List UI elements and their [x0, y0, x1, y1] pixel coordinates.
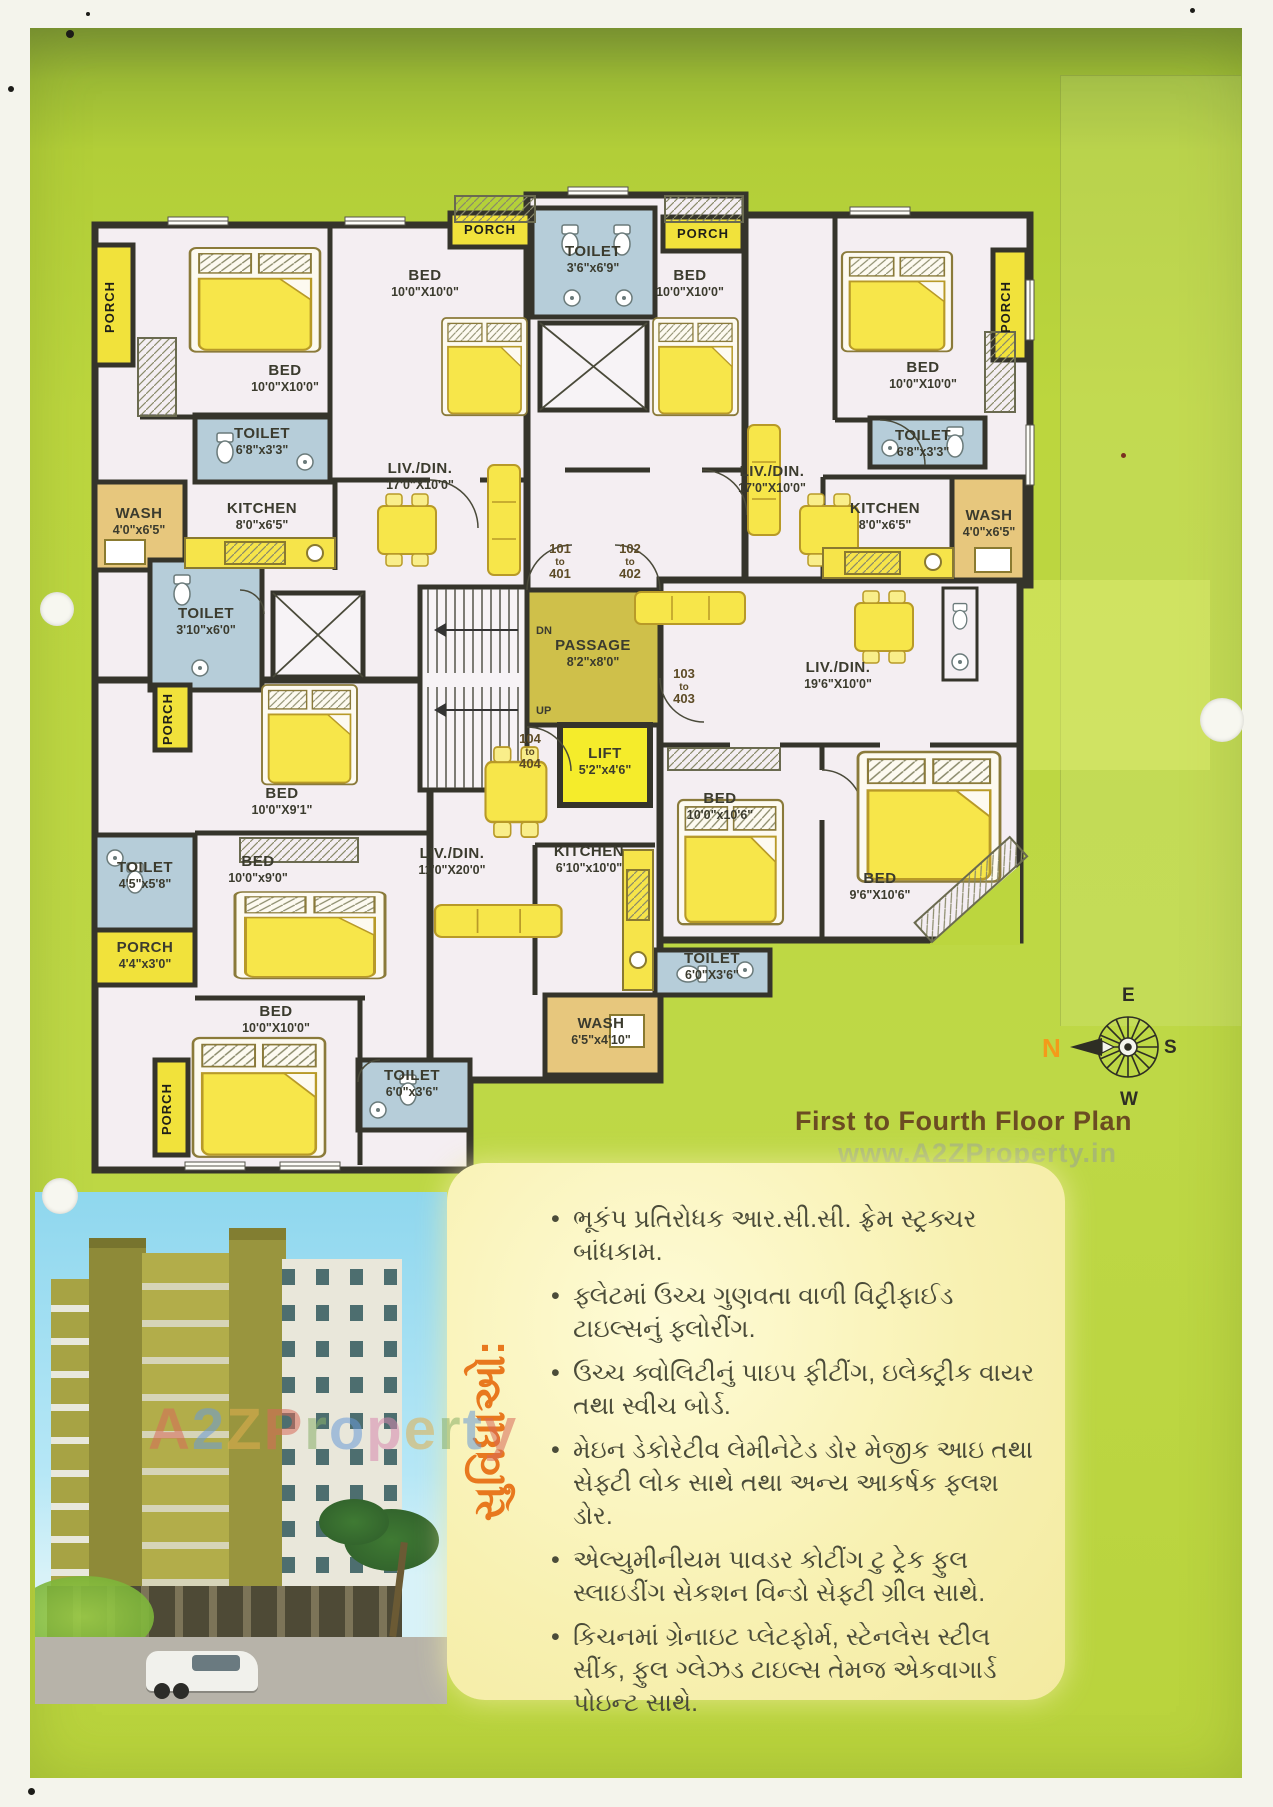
watermark-letter: p [366, 1397, 403, 1462]
watermark-letter: r [304, 1397, 329, 1462]
punch-hole [1200, 698, 1244, 742]
room-label: TOILET6'8"x3'3" [234, 425, 290, 457]
facility-item: ભૂકંપ પ્રતિરોધક આર.સી.સી. ફ્રેમ સ્ટ્રક્ચ… [547, 1203, 1037, 1269]
facilities-panel: સુવિધાઓ: ભૂકંપ પ્રતિરોધક આર.સી.સી. ફ્રેમ… [447, 1163, 1065, 1700]
scan-speck [1121, 453, 1126, 458]
room-label: KITCHEN6'10"x10'0" [554, 843, 624, 875]
room-label: TOILET4'5"x5'8" [117, 859, 173, 891]
car-wheel [173, 1683, 189, 1699]
room-label: TOILET3'6"x6'9" [565, 243, 621, 275]
watermark-logo: A2ZProperty [148, 1396, 518, 1463]
porch-label: PORCH [160, 693, 175, 745]
porch-label: PORCH [159, 1083, 174, 1135]
room-label: WASH4'0"x6'5" [113, 505, 166, 537]
room-label: WASH4'0"x6'5" [963, 507, 1016, 539]
stairs-up-label: UP [536, 705, 551, 717]
facility-item: ફ્લેટમાં ઉચ્ચ ગુણવતા વાળી વિટ્રીફાઈડ ટાઇ… [547, 1280, 1037, 1346]
brochure-page: BED10'0"X10'0"TOILET6'8"x3'3"WASH4'0"x6'… [0, 0, 1273, 1807]
scan-speck [66, 30, 74, 38]
facilities-list: ભૂકંપ પ્રતિરોધક આર.સી.સી. ફ્રેમ સ્ટ્રક્ચ… [447, 1163, 1065, 1720]
compass-rose: N E S W [1040, 985, 1200, 1115]
compass-s: S [1164, 1037, 1177, 1059]
watermark-letter: t [463, 1397, 484, 1462]
facility-item: એલ્યુમીનીયમ પાવડર કોટીંગ ટુ ટ્રેક ફુલ સ્… [547, 1544, 1037, 1610]
room-label: WASH6'5"x4'10" [571, 1015, 631, 1047]
room-label: TOILET6'0"x3'6" [384, 1067, 440, 1099]
scan-speck [8, 86, 14, 92]
compass-e: E [1122, 985, 1135, 1007]
watermark-letter: Z [226, 1397, 263, 1462]
facility-item: ઉચ્ચ ક્વોલિટીનું પાઇપ ફીટીંગ, ઇલેક્ટ્રીક… [547, 1357, 1037, 1423]
scan-speck [1190, 8, 1195, 13]
floor-plan: BED10'0"X10'0"TOILET6'8"x3'3"WASH4'0"x6'… [90, 170, 1065, 1180]
car-window [192, 1655, 240, 1671]
porch-label: PORCH [102, 281, 117, 333]
page-title: First to Fourth Floor Plan [795, 1106, 1175, 1137]
room-label: LIV./DIN.11'0"X20'0" [418, 845, 485, 877]
porch-label: PORCH [464, 222, 516, 237]
compass-n: N [1042, 1033, 1061, 1064]
facility-item: મેઇન ડેકોરેટીવ લેમીનેટેડ ડોર મેજીક આઇ તથ… [547, 1434, 1037, 1533]
scan-shade [1060, 75, 1241, 1026]
watermark-letter: y [484, 1397, 518, 1462]
punch-hole [42, 1178, 78, 1214]
porch-label: PORCH [677, 226, 729, 241]
room-label: LIV./DIN.17'0"X10'0" [386, 460, 454, 492]
scan-speck [86, 12, 90, 16]
watermark-letter: o [329, 1397, 366, 1462]
room-label: LIV./DIN.19'6"X10'0" [804, 659, 872, 691]
watermark-letter: 2 [192, 1397, 226, 1462]
scan-speck [28, 1788, 35, 1795]
porch-label: PORCH [998, 281, 1013, 333]
room-label: TOILET6'0"X3'6" [684, 950, 740, 982]
room-label: TOILET6'8"x3'3" [895, 427, 951, 459]
room-label: KITCHEN8'0"x6'5" [850, 500, 920, 532]
stairs-dn-label: DN [536, 625, 552, 637]
watermark-letter: r [438, 1397, 463, 1462]
watermark-letter: A [148, 1397, 192, 1462]
watermark-letter: P [264, 1397, 305, 1462]
facility-item: કિચનમાં ગ્રેનાઇટ પ્લેટફોર્મ, સ્ટેનલેસ સ્… [547, 1621, 1037, 1720]
room-label: LIV./DIN.17'0"X10'0" [738, 463, 806, 495]
room-label: PORCH4'4"x3'0" [117, 939, 174, 971]
watermark-letter: e [404, 1397, 438, 1462]
room-label: KITCHEN8'0"x6'5" [227, 500, 297, 532]
room-label: TOILET3'10"x6'0" [176, 605, 236, 637]
punch-hole [40, 592, 74, 626]
